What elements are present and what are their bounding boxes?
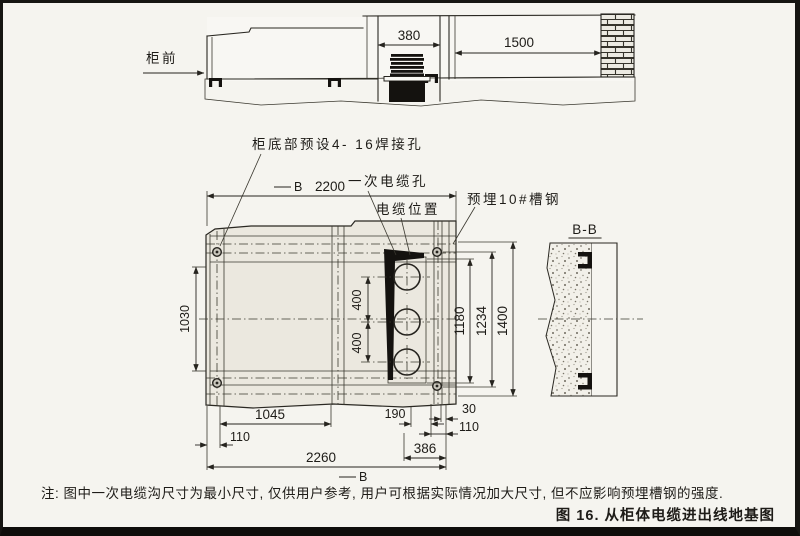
trench-wall-section <box>592 243 617 396</box>
dim-bottom-110-left: 110 <box>230 430 250 444</box>
dim-hole-gap-lower: 400 <box>350 333 364 354</box>
dim-right-inner: 1180 <box>452 306 467 335</box>
welding-holes-label: 柜底部预设4- 16焊接孔 <box>252 136 423 152</box>
cabinet-front-label: 柜前 <box>146 50 178 66</box>
channel-clip-icon <box>328 78 341 87</box>
channel-clip-icon <box>209 78 222 87</box>
section-bb-view: B-B <box>538 222 643 396</box>
dim-bottom-segment: 1045 <box>255 407 285 422</box>
dim-hole-gap-upper: 400 <box>350 290 364 311</box>
primary-cable-hole-label: 一次电缆孔 <box>348 174 428 189</box>
brick-wall <box>601 14 634 77</box>
section-marker-bottom: B <box>359 470 367 484</box>
dim-bottom-110-right: 110 <box>459 420 479 434</box>
dim-bottom-total: 2260 <box>306 450 336 465</box>
scanned-engineering-drawing: 柜前 380 1500 <box>0 0 800 536</box>
cable-position-label: 电缆位置 <box>376 202 440 217</box>
dim-bottom-190: 190 <box>385 407 406 421</box>
drawing-note: 注: 图中一次电缆沟尺寸为最小尺寸, 仅供用户参考, 用户可根据实际情况加大尺寸… <box>41 485 723 501</box>
dim-right-outer: 1400 <box>495 306 510 336</box>
drawing-canvas: 柜前 380 1500 <box>3 3 795 527</box>
ground-top-line <box>363 15 635 16</box>
side-section-view: 柜前 380 1500 <box>143 14 635 106</box>
section-bb-title: B-B <box>572 222 598 237</box>
figure-caption: 图 16. 从柜体电缆进出线地基图 <box>556 506 775 524</box>
dim-bottom-30: 30 <box>462 402 476 416</box>
plan-view: 柜底部预设4- 16焊接孔 一次电缆孔 电缆位置 预埋10#槽钢 2200 B … <box>178 136 561 484</box>
dim-right-middle: 1234 <box>474 305 489 336</box>
section-marker-top: B <box>294 180 302 194</box>
embedded-channel-label: 预埋10#槽钢 <box>467 192 561 207</box>
dim-width-top: 2200 <box>315 179 345 194</box>
dim-bottom-386: 386 <box>414 441 437 456</box>
dim-duct-width: 380 <box>398 28 421 43</box>
dim-rear-gap: 1500 <box>504 35 534 50</box>
dim-left-height: 1030 <box>178 305 192 333</box>
